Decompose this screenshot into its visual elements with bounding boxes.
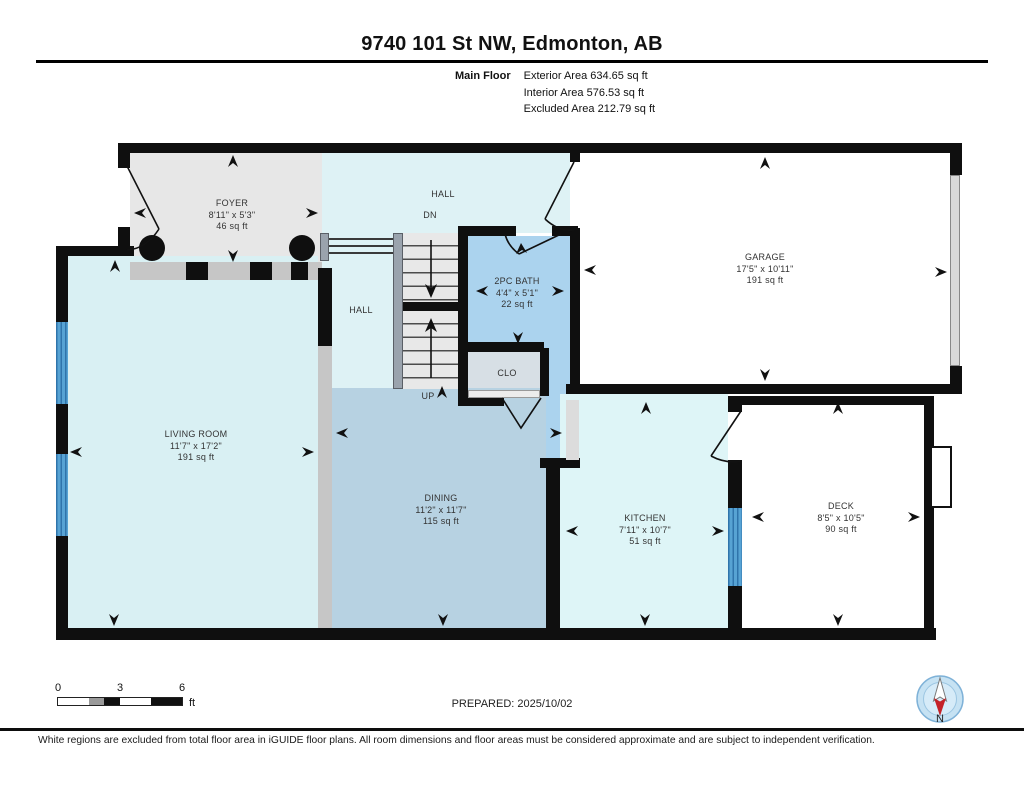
dimension-arrow	[550, 428, 562, 438]
dimension-arrow	[908, 512, 920, 522]
compass-north-label: N	[931, 713, 949, 725]
dimension-arrow	[760, 369, 770, 381]
dimension-arrow	[752, 512, 764, 522]
dimension-arrow	[110, 260, 120, 272]
disclaimer-text: White regions are excluded from total fl…	[38, 735, 875, 746]
scale-tick: 6	[176, 682, 188, 694]
dimension-arrow	[712, 526, 724, 536]
footer-divider	[0, 728, 1024, 731]
dimension-arrow	[336, 428, 348, 438]
door-swing	[545, 162, 574, 230]
dimension-arrow	[306, 208, 318, 218]
dimension-arrow	[935, 267, 947, 277]
prepared-date: PREPARED: 2025/10/02	[0, 698, 1024, 710]
door-swing	[505, 234, 561, 254]
floor-plan: FOYER 8'11" x 5'3" 46 sq ft HALL DN GARA…	[0, 0, 1024, 791]
floorplan-page: 9740 101 St NW, Edmonton, AB Main Floor …	[0, 0, 1024, 791]
door-swing	[127, 166, 159, 250]
dimension-arrow	[641, 402, 651, 414]
scale-tick: 3	[114, 682, 126, 694]
dimension-arrow	[228, 250, 238, 262]
dimension-arrow	[566, 526, 578, 536]
dimension-arrow	[438, 614, 448, 626]
dimension-arrow	[70, 447, 82, 457]
dimension-arrow	[640, 614, 650, 626]
dimension-arrow	[228, 155, 238, 167]
dimension-arrow	[760, 157, 770, 169]
dimension-arrow	[584, 265, 596, 275]
dimension-arrow	[513, 332, 523, 344]
dimension-arrow	[134, 208, 146, 218]
dimension-arrow	[302, 447, 314, 457]
dimension-arrow	[437, 386, 447, 398]
closet-door-fold	[502, 398, 541, 428]
dimension-arrow	[109, 614, 119, 626]
dimension-arrow	[833, 614, 843, 626]
plan-annotations	[0, 0, 1024, 791]
dimension-arrow	[833, 402, 843, 414]
door-swing	[711, 411, 741, 462]
scale-tick: 0	[52, 682, 64, 694]
dimension-arrow	[552, 286, 564, 296]
dimension-arrow	[476, 286, 488, 296]
